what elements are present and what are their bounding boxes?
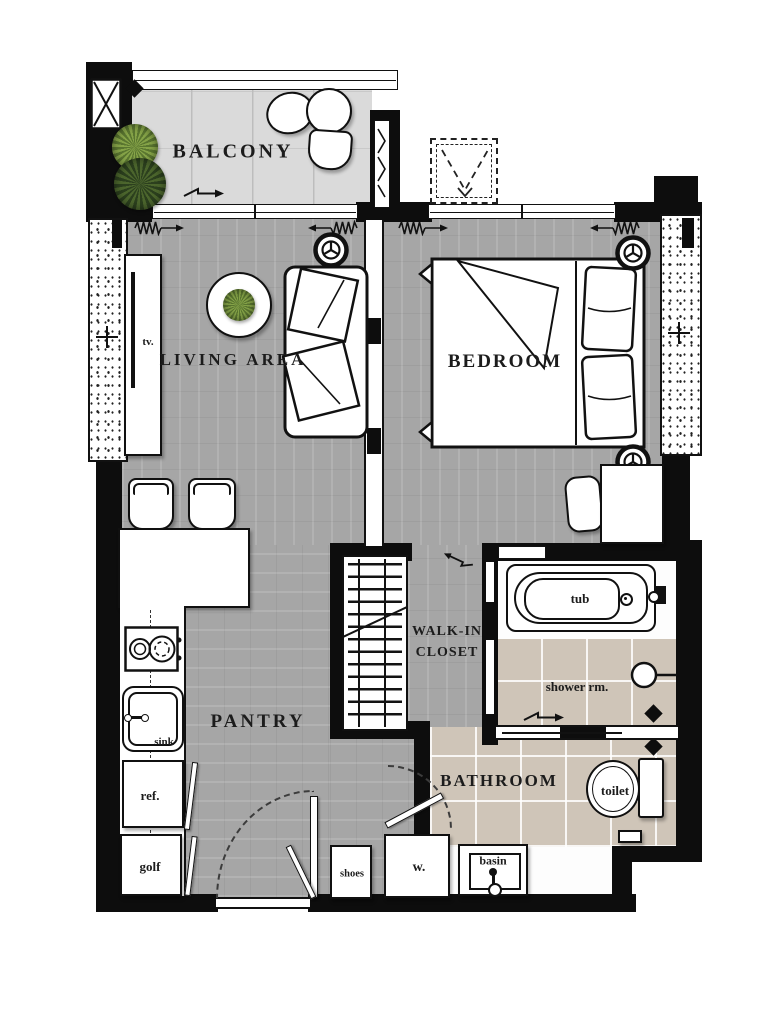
refrigerator: ref. [122, 760, 184, 828]
pantry-label: PANTRY [210, 711, 305, 733]
floor-plan: sink ref. golf tub toilet [0, 0, 768, 1024]
window-slide-spring-icon [304, 220, 360, 236]
closet-rail [358, 559, 360, 727]
louver-slit [374, 120, 390, 208]
bathtub: tub [506, 564, 656, 632]
louver-chevrons-icon [375, 121, 388, 206]
wall-segment [356, 202, 432, 222]
bathroom-label: BATHROOM [440, 771, 558, 791]
balcony-label: BALCONY [172, 141, 293, 164]
faucet-dot [124, 714, 132, 722]
tv-label: tv. [142, 336, 153, 348]
shower-sliding-door [496, 725, 678, 740]
toilet-flush-plate [618, 830, 642, 843]
window-center-mark-icon [666, 320, 692, 346]
tub-drain-dot [624, 597, 627, 600]
tv-console [124, 254, 162, 456]
fridge-label: ref. [141, 788, 160, 804]
tub-faucet-knob [648, 591, 660, 603]
bedroom-label: BEDROOM [448, 351, 562, 373]
shoe-cabinet: shoes [330, 845, 372, 899]
shoes-label: shoes [340, 869, 364, 880]
wall-segment [96, 446, 122, 912]
sliding-door-slit [498, 546, 546, 559]
entry-door-leaf [310, 796, 318, 898]
ceiling-light-icon [311, 230, 351, 270]
golf-label: golf [140, 859, 161, 875]
closet-rail [384, 559, 386, 727]
faucet-dot [141, 714, 149, 722]
chair-back [133, 483, 169, 495]
direction-arrow-icon [180, 184, 226, 200]
direction-arrow-icon [520, 708, 566, 724]
shower-door-track [502, 732, 622, 734]
kitchen-sink: sink [122, 686, 184, 752]
basin-label: basin [479, 854, 506, 869]
panel-notch [112, 220, 122, 248]
bar-chair [128, 478, 174, 530]
basin-faucet-dot [489, 868, 497, 876]
walkin-label-line1: WALK-IN [412, 624, 482, 640]
living-area-label: LIVING AREA [160, 350, 307, 370]
panel-notch [682, 218, 694, 248]
washer: w. [384, 834, 450, 898]
wall-segment [676, 540, 702, 860]
shower-glass-slit [486, 640, 494, 714]
bar-chair [188, 478, 236, 530]
shower-room-label: shower rm. [546, 679, 609, 695]
walkin-label-line2: CLOSET [416, 645, 479, 661]
cooktop [124, 626, 182, 672]
window-divider [521, 204, 523, 219]
balcony-plant [114, 158, 166, 210]
walk-in-corridor-floor [408, 545, 484, 741]
basin-cabinet: basin [458, 844, 528, 896]
window-slide-spring-icon [396, 220, 452, 236]
ceiling-light-icon [613, 233, 653, 273]
counter-island [118, 528, 250, 608]
sink-label: sink [154, 736, 174, 748]
ac-v-mark-icon [436, 144, 494, 200]
balcony-railing [132, 70, 398, 90]
window-divider [254, 204, 256, 219]
window-center-mark-icon [94, 324, 120, 350]
column-marker-icon [90, 78, 122, 130]
table-plant [223, 289, 255, 321]
nightstand [600, 464, 664, 544]
golf-storage: golf [120, 834, 182, 896]
basin-drain-ring [488, 883, 502, 897]
wall-segment [96, 894, 218, 912]
wall-segment [662, 446, 690, 550]
bedside-stool [564, 475, 605, 534]
toilet-tank [638, 758, 664, 818]
hanger-stripes [348, 563, 402, 723]
tv-screen [131, 272, 135, 388]
closet-rack [342, 555, 408, 731]
chair-back [193, 483, 231, 495]
door-slit [486, 562, 494, 602]
tub-label: tub [571, 591, 590, 607]
toilet-bowl: toilet [586, 760, 640, 818]
toilet-label: toilet [601, 783, 629, 799]
washer-label: w. [413, 860, 426, 876]
shower-head-icon [630, 660, 678, 690]
ac-condenser-outline [430, 138, 498, 204]
balcony-table [306, 88, 352, 134]
window-slide-spring-icon [132, 220, 188, 236]
wall-segment [654, 176, 698, 204]
entry-threshold [216, 897, 310, 909]
tub-drain [620, 593, 633, 606]
